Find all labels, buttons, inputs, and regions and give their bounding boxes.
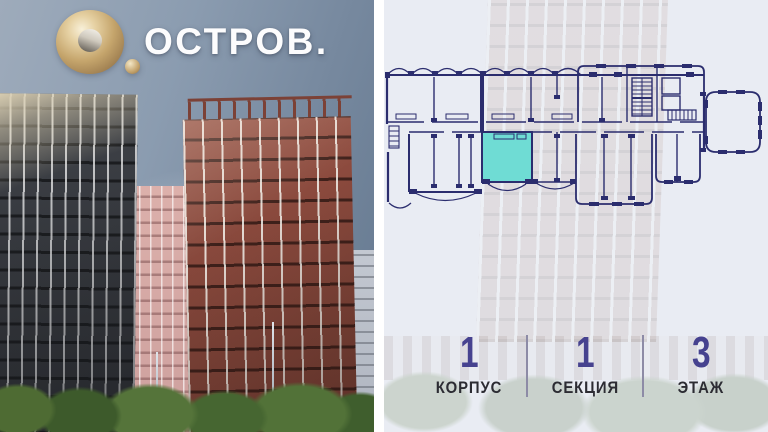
info-floor: 3 ЭТАЖ (644, 330, 758, 398)
floor-number: 3 (692, 330, 711, 376)
floor-plan-panel: 1 КОРПУС 1 СЕКЦИЯ 3 ЭТАЖ (384, 0, 768, 432)
brand-logo: ОСТРОВ. (56, 10, 329, 74)
info-building: 1 КОРПУС (412, 330, 526, 398)
logo-period-dot (125, 59, 140, 74)
building-label: КОРПУС (436, 379, 503, 398)
gold-ring-o-icon (56, 10, 124, 74)
building-number: 1 (460, 330, 479, 376)
apartment-card: ОСТРОВ. (0, 0, 768, 432)
logo-wordmark: ОСТРОВ. (144, 21, 329, 63)
floor-plan (384, 52, 768, 224)
info-section: 1 СЕКЦИЯ (528, 330, 642, 398)
trees (0, 368, 374, 432)
unit-location-info: 1 КОРПУС 1 СЕКЦИЯ 3 ЭТАЖ (384, 330, 768, 422)
panel-divider (374, 0, 384, 432)
section-label: СЕКЦИЯ (551, 379, 618, 398)
section-number: 1 (576, 330, 595, 376)
floor-label: ЭТАЖ (678, 379, 724, 398)
building-render-photo: ОСТРОВ. (0, 0, 374, 432)
